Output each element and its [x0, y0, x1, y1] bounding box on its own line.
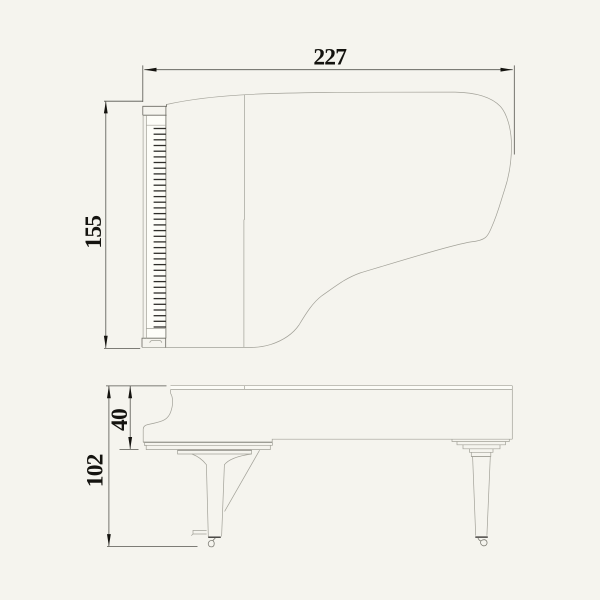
svg-text:155: 155 [81, 216, 107, 249]
svg-text:40: 40 [107, 409, 133, 431]
svg-text:102: 102 [83, 454, 109, 487]
svg-text:227: 227 [313, 44, 347, 70]
